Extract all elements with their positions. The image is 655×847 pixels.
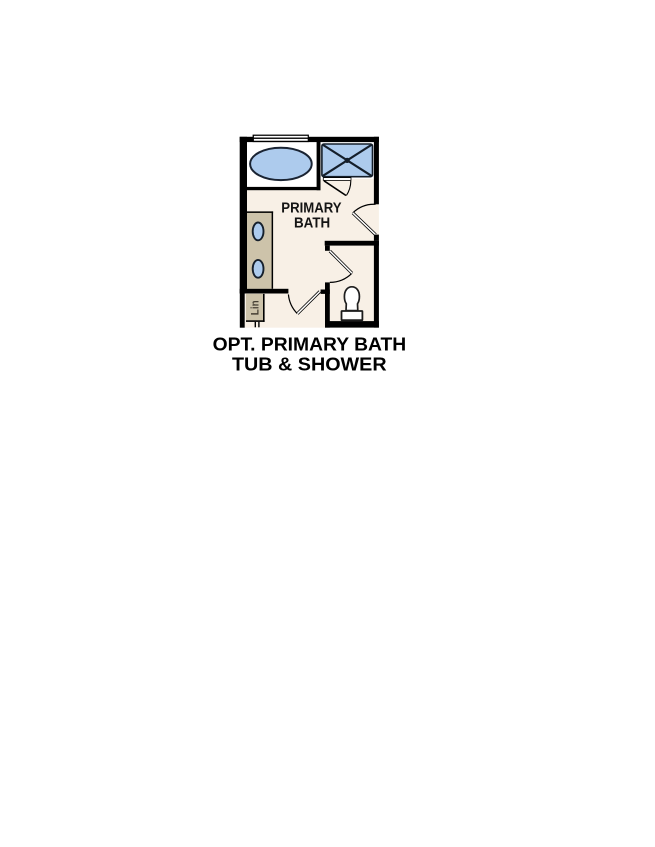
svg-text:BATH: BATH (294, 216, 330, 232)
svg-text:Lin: Lin (250, 300, 262, 315)
svg-text:OPT. PRIMARY BATH: OPT. PRIMARY BATH (213, 335, 407, 356)
svg-text:PRIMARY: PRIMARY (281, 200, 342, 216)
svg-text:TUB & SHOWER: TUB & SHOWER (232, 354, 387, 375)
